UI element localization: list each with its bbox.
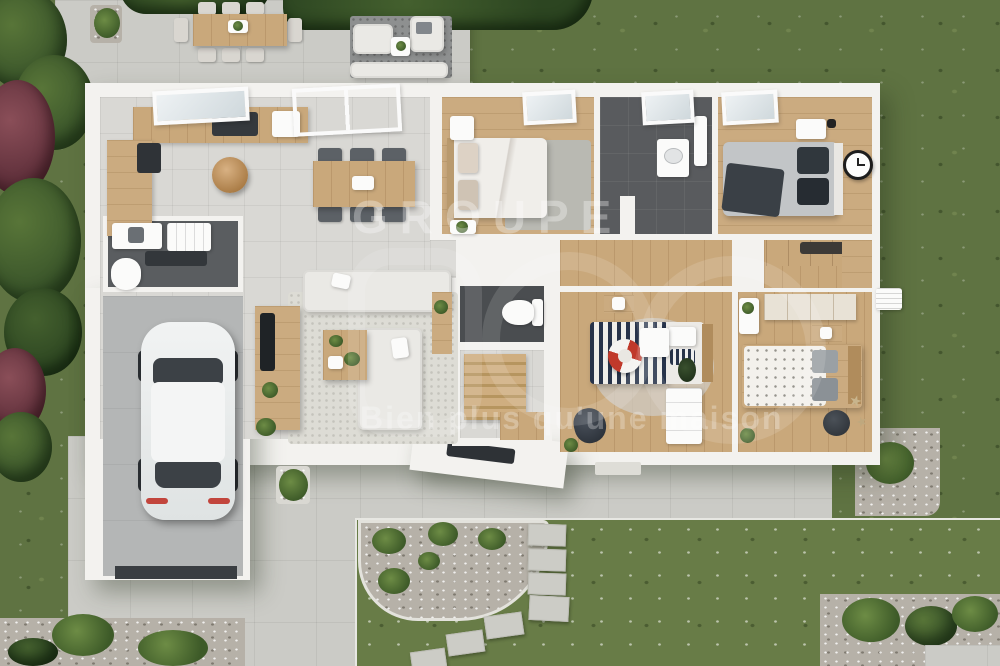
patio-table-plant bbox=[233, 21, 243, 31]
bedroom1-pillow-1 bbox=[458, 143, 478, 173]
doormat bbox=[595, 462, 641, 475]
bath-mirror bbox=[694, 116, 707, 166]
stepping-stone-3 bbox=[528, 572, 567, 595]
bedroom3-pouf bbox=[823, 410, 850, 436]
car bbox=[138, 322, 238, 520]
stepping-stone-1 bbox=[528, 523, 567, 546]
dining-centerpiece bbox=[352, 176, 374, 190]
dressing-shelf-inset bbox=[800, 242, 848, 254]
border-shrub-1 bbox=[842, 598, 900, 642]
planter-shrub bbox=[94, 8, 120, 38]
bedroom2-nightstand bbox=[796, 119, 826, 139]
car-roof bbox=[151, 382, 225, 462]
bedroom4-plant bbox=[564, 438, 578, 452]
bedroom2-throw bbox=[721, 163, 784, 218]
skylight-bathroom bbox=[641, 90, 695, 126]
bath-basin bbox=[664, 148, 683, 164]
patio-chair-8 bbox=[288, 18, 302, 42]
patio-chair-7 bbox=[174, 18, 188, 42]
bedroom2-headboard bbox=[834, 143, 843, 215]
patio-chair-6 bbox=[246, 48, 264, 62]
clock-minute-hand bbox=[857, 164, 865, 166]
border-shrub-2 bbox=[905, 606, 957, 646]
border-plant-3 bbox=[8, 638, 58, 666]
utility-counter bbox=[145, 251, 207, 266]
pendant-lamp-1 bbox=[212, 157, 248, 193]
wall-clock bbox=[843, 150, 873, 180]
skylight-dining bbox=[292, 83, 402, 137]
coffee-table-tray bbox=[328, 356, 343, 369]
border-plant-1 bbox=[52, 614, 114, 656]
lounge-bench bbox=[350, 62, 448, 78]
car-taillight-right bbox=[208, 498, 230, 504]
car-windshield bbox=[153, 358, 223, 384]
utility-cabinet bbox=[167, 223, 211, 251]
skylight-bedroom1 bbox=[522, 90, 577, 126]
gravel-grass-tuft-5 bbox=[418, 552, 440, 570]
palm-plant bbox=[279, 469, 308, 501]
tv-screen bbox=[260, 313, 275, 371]
bedroom2-pillow-1 bbox=[797, 147, 829, 174]
gravel-grass-tuft-2 bbox=[428, 522, 458, 546]
lounge-table-plant bbox=[396, 41, 406, 51]
floor-plan-render: ★ ★ GROUPE Bien plus qu'une maison bbox=[0, 0, 1000, 666]
washer-door bbox=[128, 227, 144, 243]
gravel-grass-tuft-4 bbox=[378, 568, 410, 594]
dressing-side-cabinet bbox=[842, 240, 872, 288]
border-shrub-3 bbox=[952, 596, 998, 632]
car-taillight-left bbox=[146, 498, 168, 504]
bedroom2-wall-lamp bbox=[827, 119, 836, 128]
patio-chair-4 bbox=[198, 48, 216, 62]
car-rear-window bbox=[155, 462, 221, 488]
oven-unit bbox=[137, 143, 161, 173]
watermark-tagline: Bien plus qu'une maison bbox=[360, 400, 783, 437]
lounge-sofa-pillow bbox=[416, 22, 432, 34]
bedroom2-pillow-2 bbox=[797, 178, 829, 205]
stepping-stone-4 bbox=[528, 595, 569, 622]
gravel-grass-tuft-3 bbox=[478, 528, 506, 550]
tv-plant-2 bbox=[256, 418, 276, 436]
skylight-kitchen bbox=[152, 87, 250, 126]
skylight-bedroom2 bbox=[721, 90, 779, 126]
coffee-table-plant-1 bbox=[329, 335, 343, 347]
bedroom1-nightstand-round bbox=[450, 116, 474, 140]
dining-chair-4 bbox=[318, 206, 342, 222]
patio-chair-5 bbox=[222, 48, 240, 62]
lounge-sofa-left bbox=[353, 24, 393, 54]
heat-pump-unit bbox=[876, 288, 902, 310]
water-heater bbox=[111, 258, 141, 290]
concrete-corner-br bbox=[925, 645, 1000, 666]
stepping-stone-2 bbox=[528, 548, 567, 571]
tv-plant-1 bbox=[262, 382, 278, 398]
gravel-grass-tuft-1 bbox=[372, 528, 406, 554]
garage-door-opening bbox=[115, 566, 237, 579]
border-plant-2 bbox=[138, 630, 208, 666]
watermark-groupe: GROUPE bbox=[352, 190, 623, 244]
